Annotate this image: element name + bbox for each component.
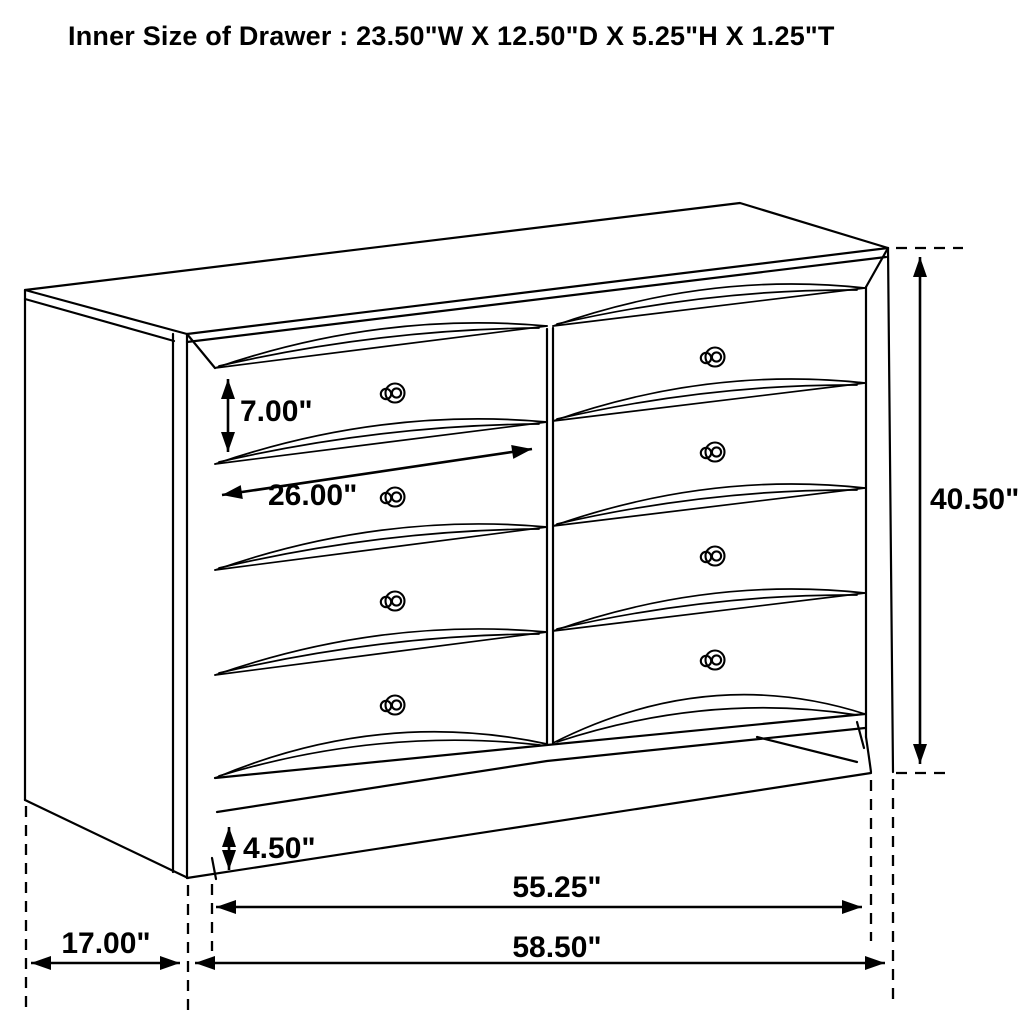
cabinet-outline — [25, 203, 893, 879]
projection-lines — [26, 248, 963, 1013]
top-front-edge-line — [187, 257, 886, 342]
dresser-dimension-diagram-page: Inner Size of Drawer : 23.50"W X 12.50"D… — [0, 0, 1024, 1024]
dim-overall-height: 40.50" — [920, 257, 1019, 764]
dim-depth: 17.00" — [31, 927, 180, 963]
drawer-knob-icon — [701, 443, 725, 462]
dim-base-height: 4.50" — [229, 827, 316, 870]
inner-width-label: 55.25" — [512, 871, 601, 904]
left-foot-notch — [212, 858, 216, 879]
top-surface — [25, 203, 888, 334]
drawer-knob-icon — [701, 348, 725, 367]
overall-height-label: 40.50" — [930, 483, 1019, 516]
dim-drawer-width: 26.00" — [222, 449, 532, 512]
right-foot-cut — [857, 722, 864, 748]
dim-inner-width: 55.25" — [216, 871, 862, 907]
face-right-outer-edge — [888, 248, 893, 772]
base-height-label: 4.50" — [243, 832, 316, 865]
depth-label: 17.00" — [61, 927, 150, 960]
side-panel-bottom-edge — [25, 800, 188, 878]
face-top-right-bevel — [866, 248, 888, 287]
drawer-front-height-label: 7.00" — [240, 395, 313, 428]
top-left-edge-line — [25, 299, 174, 341]
drawer-knob-icon — [381, 592, 405, 611]
drawer-width-label: 26.00" — [268, 479, 357, 512]
drawer-knob-icon — [701, 651, 725, 670]
drawer-knob-icon — [381, 488, 405, 507]
right-foot-edge — [866, 737, 871, 772]
dim-drawer-front-height: 7.00" — [228, 379, 313, 452]
overall-width-label: 58.50" — [512, 931, 601, 964]
dim-overall-width: 58.50" — [195, 931, 885, 964]
right-foot-bracket — [757, 737, 857, 762]
drawer-knob-icon — [701, 547, 725, 566]
drawer-knob-icon — [381, 696, 405, 715]
drawer-knob-icon — [381, 384, 405, 403]
dresser-line-drawing: 7.00" 26.00" 40.50" 4.50" 55.25" 58.50" … — [0, 0, 1024, 1024]
